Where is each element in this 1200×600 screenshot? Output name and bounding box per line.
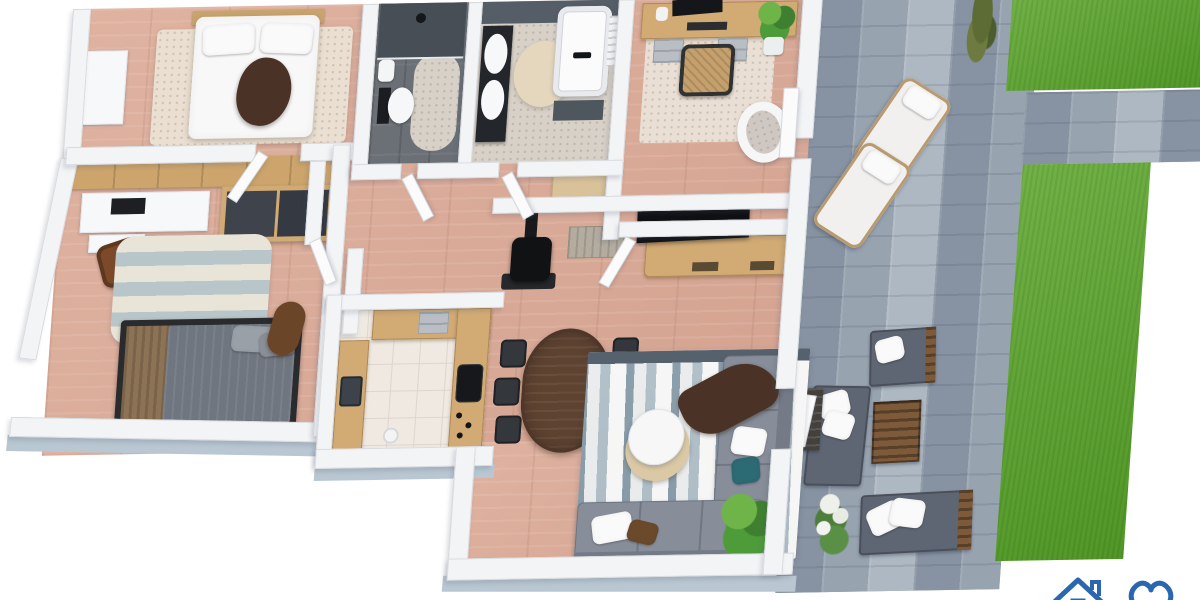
house-outline-icon [1046, 574, 1110, 600]
drawer-unit [653, 38, 685, 63]
wall [618, 219, 789, 238]
wood-stove [509, 237, 552, 282]
daybed-wood-frame [957, 490, 973, 551]
lawn-top [1006, 0, 1200, 91]
dining-chair [499, 339, 527, 367]
outdoor-daybed [859, 490, 973, 556]
dining-chair [493, 377, 521, 405]
egg-chair-cushion [742, 106, 786, 159]
bath-faucet [573, 52, 591, 58]
flowering-plant [807, 484, 859, 565]
laptop [111, 198, 146, 215]
walkway [1021, 89, 1200, 164]
pebble-mat [409, 52, 462, 151]
wall [326, 292, 505, 311]
walk-in-shower [377, 2, 467, 60]
wall [417, 162, 500, 179]
kitchen-sink [339, 376, 363, 406]
outdoor-pillow [874, 334, 906, 365]
keyboard [687, 22, 728, 31]
sofa-seam [698, 500, 704, 550]
plan-3d-view [0, 0, 1200, 600]
outdoor-pillow [888, 497, 927, 529]
desk-chair [678, 44, 736, 97]
wall [351, 163, 402, 180]
desk-vase [655, 7, 668, 21]
lawn-main [995, 162, 1151, 561]
floorplan-render [0, 0, 1200, 600]
wall [65, 144, 256, 165]
dining-chair [494, 415, 522, 443]
teal-pillow [731, 455, 761, 485]
cooktop [455, 364, 484, 403]
bed-pillow [259, 23, 314, 55]
sofa-wood-frame [925, 326, 936, 383]
heart-outline-icon [1122, 576, 1180, 600]
sideboard-slot [692, 262, 719, 271]
bed-pillow [202, 23, 255, 57]
plant-pot [763, 37, 784, 55]
counter-appliance [418, 312, 450, 335]
tall-grass-plant [962, 0, 1001, 64]
outdoor-coffee-table [871, 400, 921, 465]
outdoor-sofa [869, 326, 936, 387]
sofa-pillow [729, 425, 768, 457]
bath-mat [553, 100, 604, 121]
washbasin [378, 60, 396, 82]
sideboard-slot [750, 261, 775, 270]
wall [517, 160, 624, 178]
brand-logo [1046, 574, 1186, 600]
